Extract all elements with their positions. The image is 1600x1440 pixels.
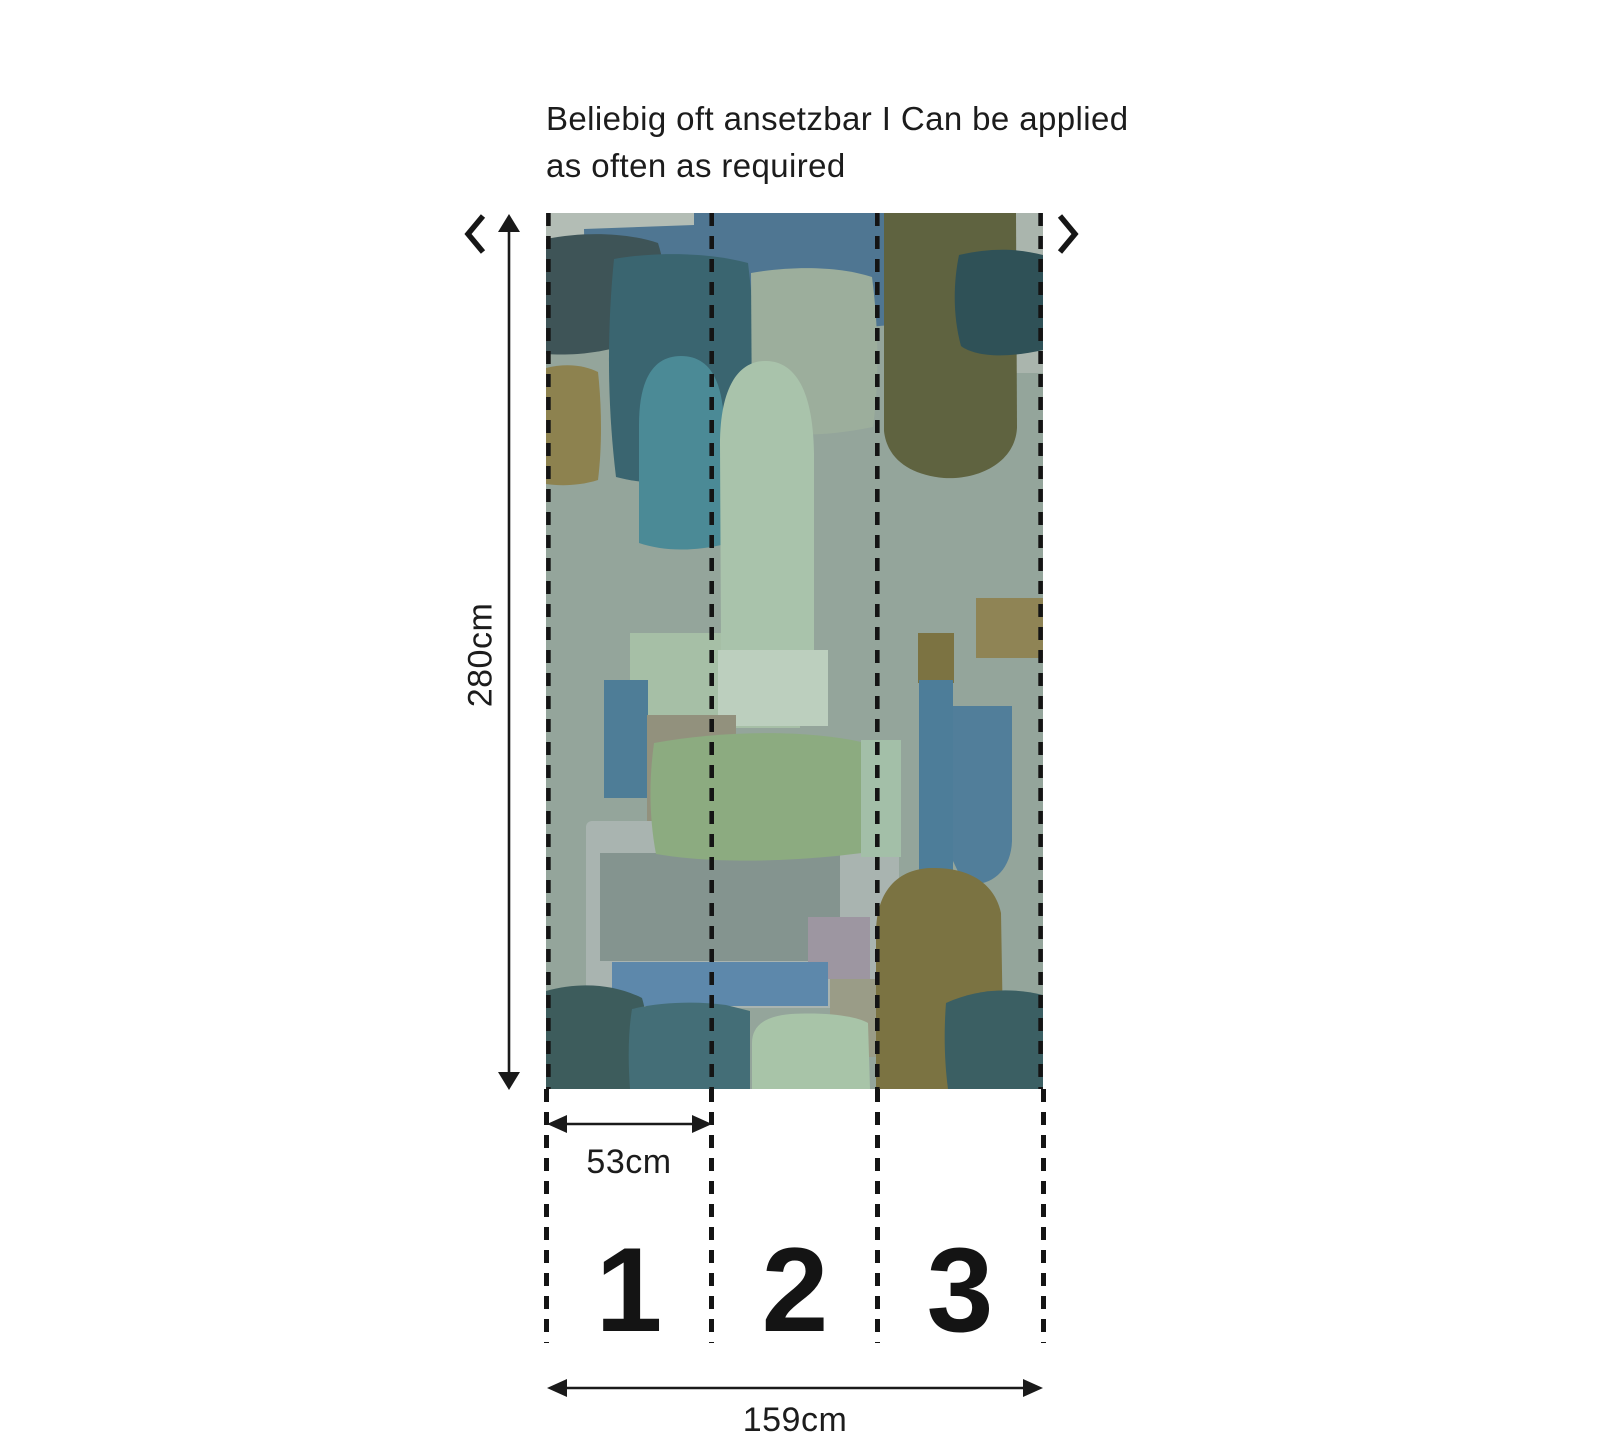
panel-number-3: 3 (927, 1230, 994, 1350)
wallpaper-shape (604, 680, 648, 798)
panel-number-2: 2 (762, 1230, 829, 1350)
wallpaper-shape (720, 361, 814, 650)
wallpaper-shape (600, 853, 840, 961)
repeat-note-line2: as often as required (546, 143, 1128, 190)
repeat-note-line1: Beliebig oft ansetzbar I Can be applied (546, 96, 1128, 143)
wallpaper-shape (919, 680, 953, 880)
wallpaper-preview (546, 213, 1043, 1089)
chevron-right-icon (1056, 212, 1080, 256)
arrow-left-icon (547, 1379, 567, 1397)
wallpaper-dimension-diagram: Beliebig oft ansetzbar I Can be applied … (0, 0, 1600, 1440)
wallpaper-shape (918, 633, 954, 683)
wallpaper-shape (752, 1013, 870, 1089)
wallpaper-shape (546, 365, 601, 485)
wallpaper-shape (945, 990, 1043, 1089)
total-width-label: 159cm (743, 1401, 848, 1440)
cut-line-3 (875, 1089, 880, 1343)
height-dimension-label: 280cm (462, 603, 501, 708)
arrow-down-icon (498, 1072, 520, 1090)
repeat-note: Beliebig oft ansetzbar I Can be applied … (546, 96, 1128, 190)
chevron-right-stroke (1060, 216, 1075, 252)
arrow-right-icon (1023, 1379, 1043, 1397)
wallpaper-shape (718, 650, 828, 726)
total-width-arrow (546, 1376, 1044, 1400)
wallpaper-shape (953, 706, 1012, 884)
wallpaper-shape (612, 962, 828, 1006)
chevron-left-icon (463, 212, 487, 256)
strip-width-label: 53cm (586, 1143, 671, 1182)
wallpaper-shape (955, 250, 1043, 356)
arrow-right-icon (692, 1115, 712, 1133)
wallpaper-shape (629, 1003, 750, 1089)
chevron-left-stroke (468, 216, 483, 252)
arrow-left-icon (547, 1115, 567, 1133)
wallpaper-shape (650, 733, 865, 861)
strip-width-arrow (546, 1112, 713, 1136)
wallpaper-shape (861, 740, 901, 857)
panel-number-1: 1 (596, 1230, 663, 1350)
arrow-up-icon (498, 214, 520, 232)
wallpaper-shape (976, 598, 1043, 658)
cut-line-4 (1041, 1089, 1046, 1343)
